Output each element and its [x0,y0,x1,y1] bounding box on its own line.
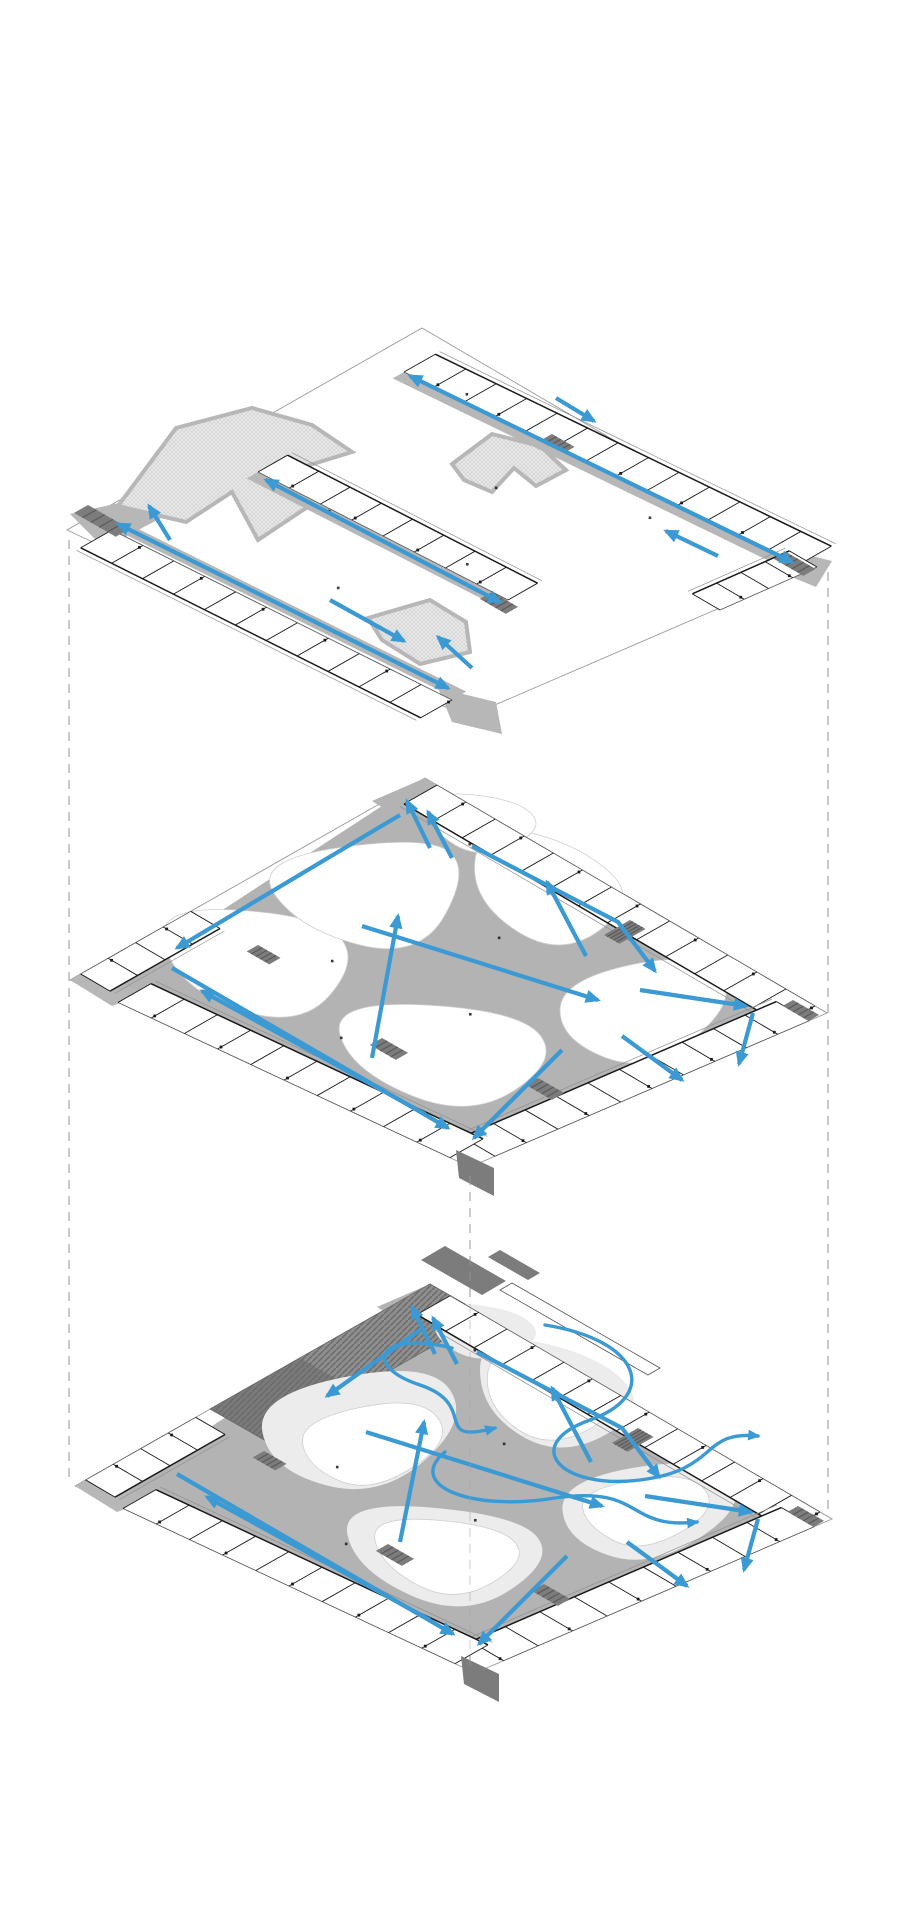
upper-floor-plan [67,328,836,734]
floor-plan-diagram-canvas [0,0,900,1909]
circulation-arrow [666,531,718,556]
middle-floor-plan [70,778,827,1196]
ground-floor-plan [75,1246,832,1702]
stair-tail-block [456,1150,494,1196]
circulation-plate [438,688,502,734]
stair-tail-block [461,1656,499,1702]
exploded-axonometric-figure [0,0,900,1909]
